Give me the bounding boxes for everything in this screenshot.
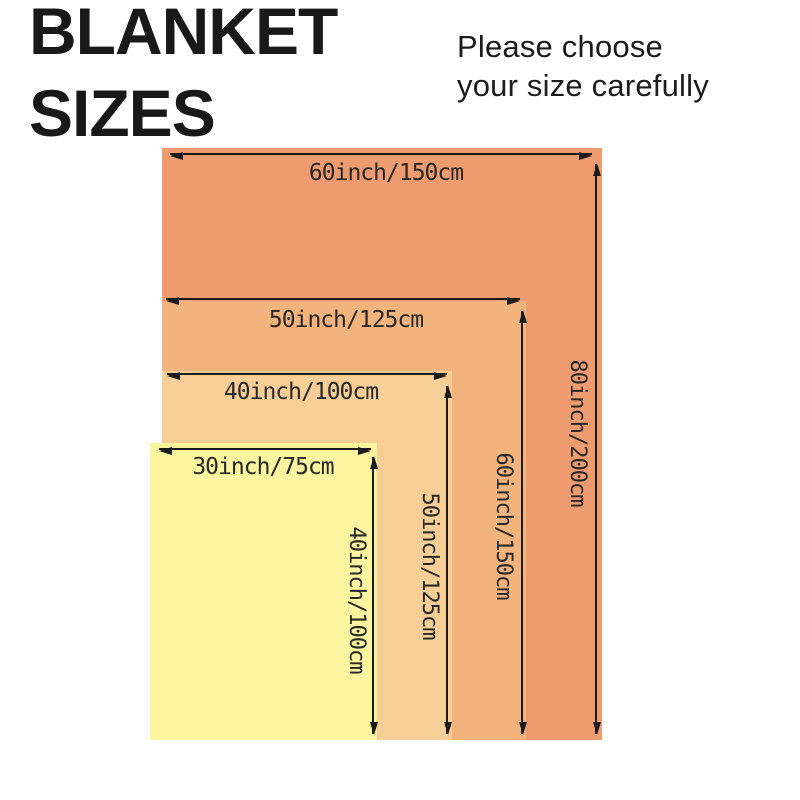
height-label-50x60: 60inch/150cm bbox=[491, 453, 515, 600]
height-label-60x80: 80inch/200cm bbox=[565, 360, 589, 507]
width-arrow-60x80 bbox=[170, 153, 592, 155]
width-arrow-50x60 bbox=[166, 298, 520, 300]
height-arrow-60x80 bbox=[595, 164, 597, 734]
height-arrow-50x60 bbox=[521, 311, 523, 734]
width-label-60x80: 60inch/150cm bbox=[309, 161, 463, 186]
width-label-30x40: 30inch/75cm bbox=[192, 455, 333, 480]
height-arrow-30x40 bbox=[372, 457, 374, 734]
height-label-40x50: 50inch/125cm bbox=[417, 493, 441, 640]
width-label-50x60: 50inch/125cm bbox=[269, 308, 423, 333]
width-label-40x50: 40inch/100cm bbox=[224, 380, 378, 405]
width-arrow-30x40 bbox=[159, 448, 371, 450]
height-label-30x40: 40inch/100cm bbox=[344, 527, 368, 674]
height-arrow-40x50 bbox=[446, 386, 448, 734]
blanket-sizes-infographic: BLANKET SIZES Please choose your size ca… bbox=[0, 0, 800, 800]
width-arrow-40x50 bbox=[167, 373, 447, 375]
size-diagram: 60inch/150cm80inch/200cm50inch/125cm60in… bbox=[0, 0, 800, 800]
blanket-rect-30x40 bbox=[150, 443, 377, 740]
